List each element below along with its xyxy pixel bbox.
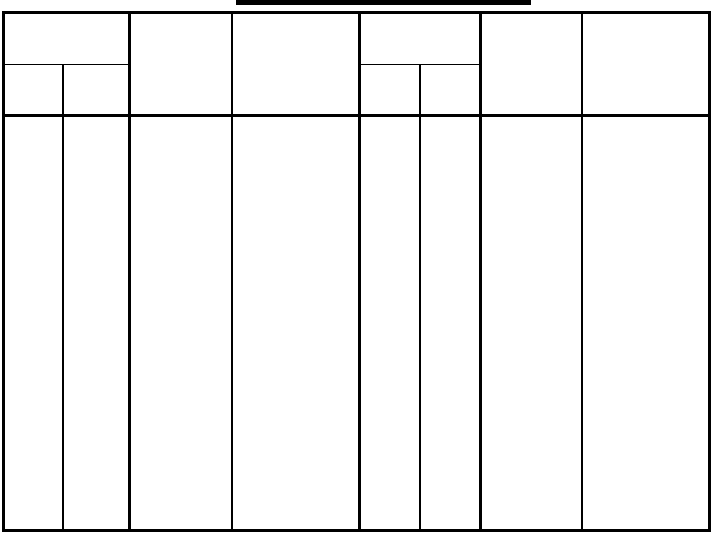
worksheet-table <box>2 11 711 532</box>
header-column-3-cell <box>232 13 360 116</box>
table-row <box>4 116 710 531</box>
title-underline-bar <box>236 0 531 5</box>
body-cell-8 <box>582 116 710 531</box>
header-column-5-cell <box>481 13 582 116</box>
body-cell-4 <box>232 116 360 531</box>
body-cell-7 <box>481 116 582 531</box>
header-group-4-sub-cell-b <box>420 65 481 116</box>
document-page <box>0 0 711 533</box>
header-group-1-sub-cell-b <box>63 65 130 116</box>
body-cell-6 <box>420 116 481 531</box>
header-group-4-sub-cell-a <box>360 65 420 116</box>
header-column-6-cell <box>582 13 710 116</box>
body-cell-1 <box>4 116 63 531</box>
header-group-1-sub-cell-a <box>4 65 63 116</box>
header-group-4-merged-cell <box>360 13 481 65</box>
body-cell-5 <box>360 116 420 531</box>
header-column-2-cell <box>130 13 232 116</box>
header-group-1-merged-cell <box>4 13 130 65</box>
body-cell-3 <box>130 116 232 531</box>
body-cell-2 <box>63 116 130 531</box>
header-row-top <box>4 13 710 65</box>
